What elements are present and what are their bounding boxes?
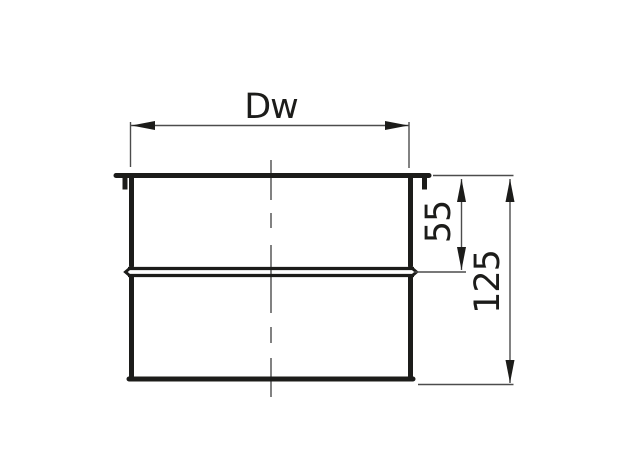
dimension-dw: Dw bbox=[131, 87, 410, 168]
dw-right-arrowhead bbox=[385, 121, 409, 130]
height-125-dimension-label: 125 bbox=[468, 250, 508, 314]
depth-55-top-arrowhead bbox=[457, 179, 466, 202]
height-125-top-arrowhead bbox=[506, 179, 515, 202]
seam-left-pinch bbox=[126, 266, 134, 279]
part-outline bbox=[116, 175, 429, 380]
dw-left-arrowhead bbox=[132, 121, 156, 130]
dw-dimension-label: Dw bbox=[244, 87, 298, 127]
depth-55-bottom-arrowhead bbox=[457, 247, 466, 270]
depth-55-dimension-label: 55 bbox=[419, 201, 459, 244]
technical-drawing-page: Dw 55 125 bbox=[0, 0, 624, 460]
height-125-bottom-arrowhead bbox=[506, 360, 515, 383]
pipe-adapter-drawing: Dw 55 125 bbox=[0, 0, 624, 460]
